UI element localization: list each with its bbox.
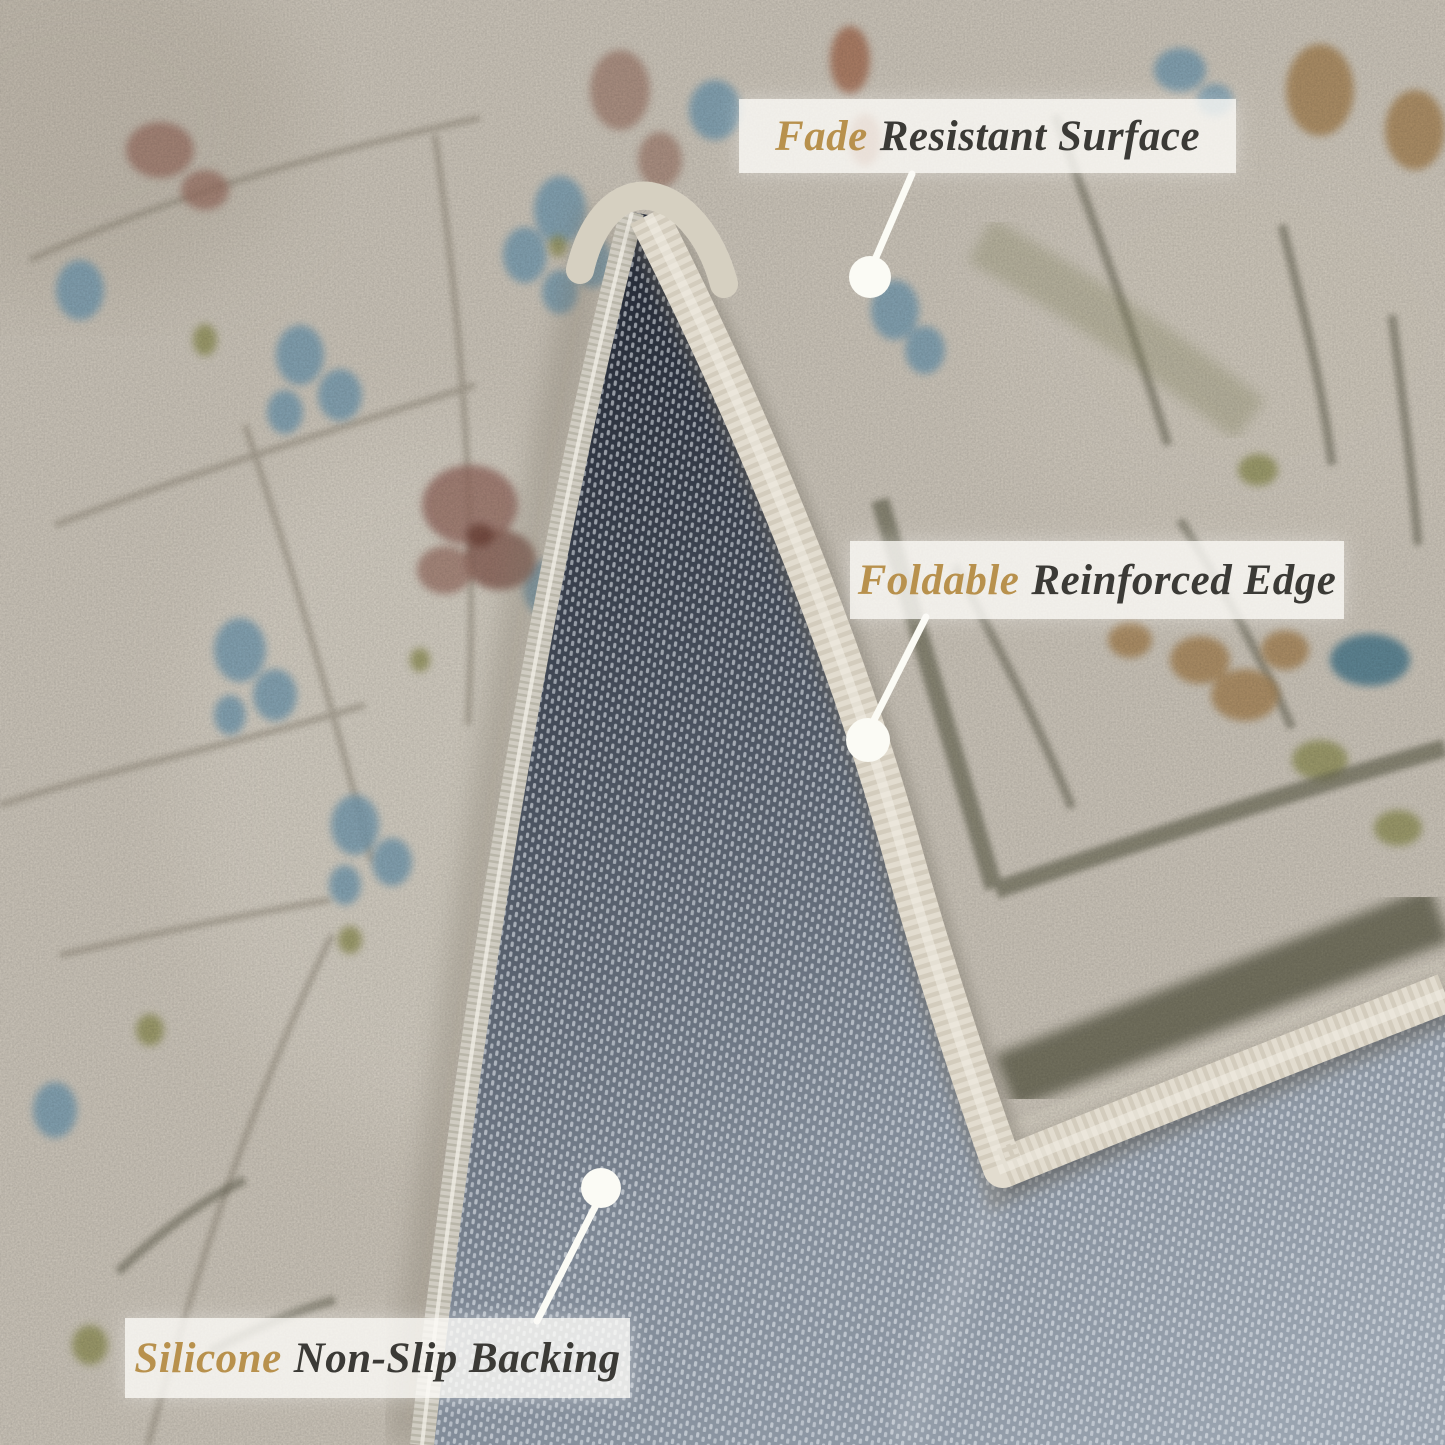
rug-product-photo: FadeResistant Surface FoldableReinforced…: [0, 0, 1445, 1445]
callout-highlight-word: Fade: [775, 112, 868, 161]
callout-label-foldable-reinforced-edge: FoldableReinforced Edge: [850, 541, 1344, 619]
callout-label-silicone-non-slip-backing: SiliconeNon-Slip Backing: [125, 1318, 630, 1398]
callout-rest-text: Resistant Surface: [880, 112, 1200, 161]
callout-label-fade-resistant-surface: FadeResistant Surface: [739, 99, 1236, 173]
callout-rest-text: Reinforced Edge: [1031, 556, 1336, 605]
callout-dot-silicone: [581, 1168, 621, 1208]
callout-dot-fade: [849, 256, 891, 298]
callout-highlight-word: Silicone: [134, 1334, 281, 1383]
callout-dot-foldable: [846, 718, 890, 762]
rug-scene: [0, 0, 1445, 1445]
callout-highlight-word: Foldable: [858, 556, 1020, 605]
callout-rest-text: Non-Slip Backing: [294, 1334, 621, 1383]
